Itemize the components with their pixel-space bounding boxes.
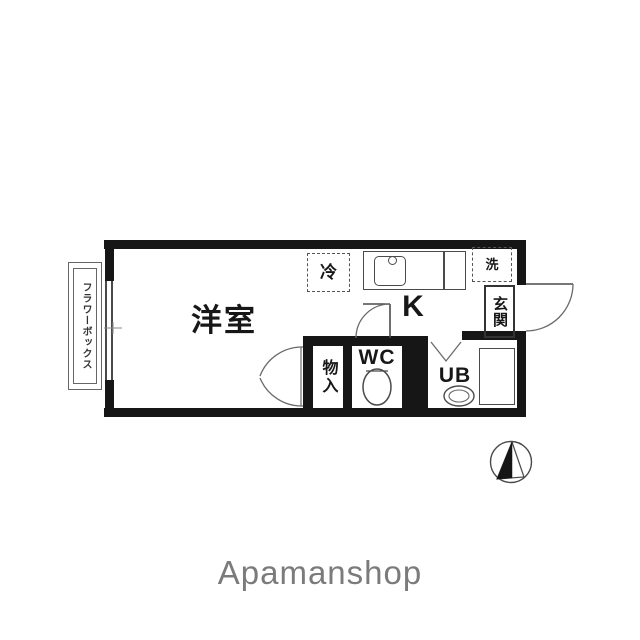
closet-door-arc-bottom — [260, 378, 303, 406]
compass-needle-outline — [497, 442, 524, 479]
kitchen-faucet-icon — [388, 256, 397, 265]
bathtub — [479, 348, 515, 405]
window-line-outer — [105, 281, 107, 380]
wall-left-lower — [105, 380, 114, 417]
storage-label: 物入 — [312, 346, 343, 408]
toilet-bowl — [363, 369, 391, 405]
closet-door-arc-top — [260, 347, 303, 376]
washbasin-outer — [444, 386, 474, 406]
wall-wc-ub-block — [402, 336, 428, 417]
entrance-label: 玄関 — [484, 285, 515, 338]
kitchen-counter-divider — [443, 251, 445, 290]
wc-door-arc — [356, 304, 390, 338]
compass-needle-fill — [497, 442, 512, 479]
refrigerator-label: 冷 — [307, 253, 350, 292]
wc-door-leaf — [363, 304, 390, 338]
washer-label: 洗 — [472, 247, 512, 282]
compass-circle — [491, 442, 532, 483]
wall-bottom — [104, 408, 526, 417]
floorplan-image: 冷 洗 玄関 フラワーボックス 洋室 K WC UB 物入 — [0, 0, 640, 640]
unit-bath-fold-door — [431, 342, 461, 361]
window-line-inner — [111, 281, 113, 380]
wc-label: WC — [352, 345, 402, 369]
kitchen-label: K — [393, 291, 433, 323]
wall-right-lower — [517, 331, 526, 417]
washbasin-inner — [449, 390, 469, 402]
wall-top — [104, 240, 526, 249]
unit-bath-label: UB — [429, 363, 481, 387]
western-room-label: 洋室 — [164, 302, 284, 338]
flower-box-label: フラワーボックス — [73, 268, 97, 384]
entry-door-arc — [526, 284, 573, 331]
wall-left-upper — [105, 240, 114, 281]
wall-right-upper — [517, 240, 526, 285]
apamanshop-logo: Apamanshop — [160, 551, 480, 595]
wall-storage-wc-div — [343, 336, 352, 417]
